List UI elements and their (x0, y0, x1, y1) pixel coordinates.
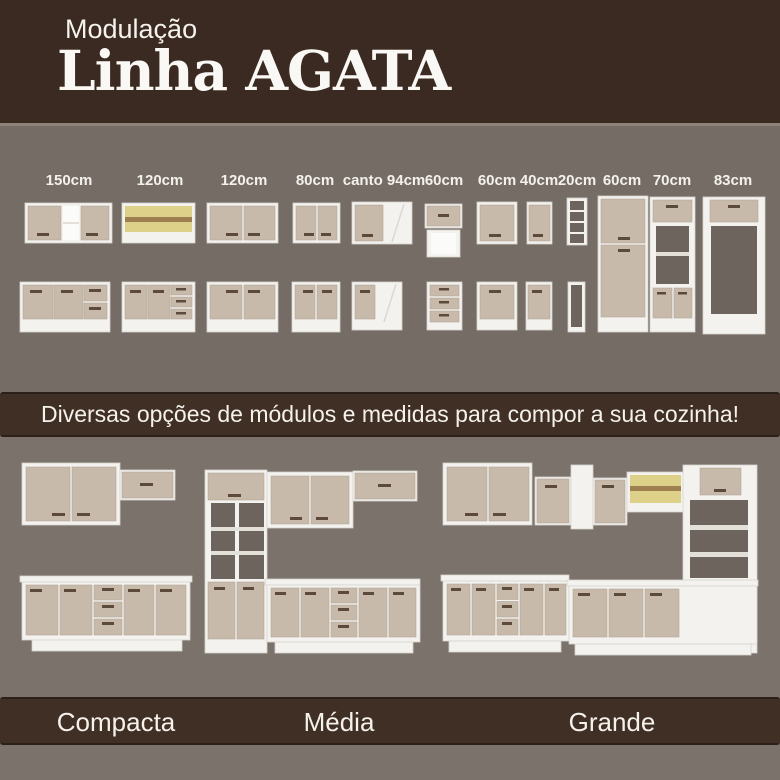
middle-band: Diversas opções de módulos e medidas par… (0, 392, 780, 437)
promo-image: Modulação Linha AGATA 150cm 120cm 120cm … (0, 0, 780, 780)
modules-section: 150cm 120cm 120cm 80cm canto 94cm 60cm 6… (0, 126, 780, 392)
header: Modulação Linha AGATA (0, 0, 780, 123)
module-cabinet-60cm-open (425, 204, 462, 330)
middle-band-text: Diversas opções de módulos e medidas par… (41, 401, 739, 428)
kitchen-grande (441, 463, 758, 655)
module-cabinet-70cm-tall (650, 197, 695, 332)
module-cabinet-canto94cm (352, 202, 412, 330)
module-cabinet-60cm-single (477, 202, 517, 330)
kitchen-compacta (20, 463, 192, 651)
module-cabinet-120cm (207, 203, 278, 332)
module-cabinet-20cm (567, 198, 587, 332)
kitchens-graphic (0, 437, 780, 697)
kitchen-label-media: Média (304, 699, 375, 745)
header-title: Linha AGATA (57, 38, 450, 103)
bottom-band: Compacta Média Grande (0, 697, 780, 745)
module-cabinet-80cm (292, 203, 340, 332)
bottom-margin (0, 745, 780, 780)
module-cabinet-40cm (526, 202, 552, 330)
module-cabinet-83cm-tall (703, 197, 765, 334)
kitchen-label-grande: Grande (569, 699, 656, 745)
modules-graphic (0, 126, 780, 392)
module-cabinet-150cm (20, 203, 112, 332)
kitchen-media (205, 470, 420, 653)
module-cabinet-120cm-glass (122, 203, 195, 332)
module-cabinet-60cm-tall (598, 196, 648, 332)
kitchens-section (0, 437, 780, 697)
kitchen-label-compacta: Compacta (57, 699, 176, 745)
